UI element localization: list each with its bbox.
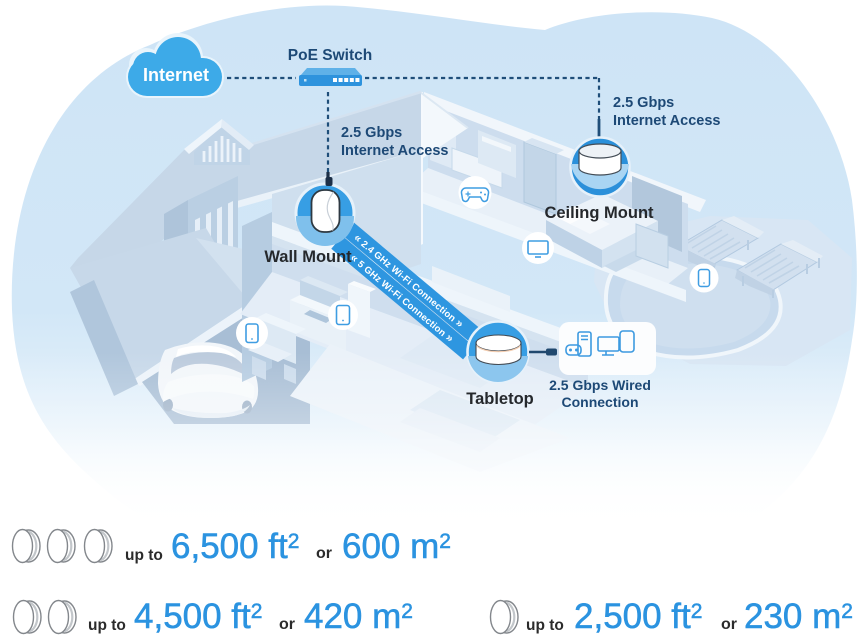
svg-text:or: or bbox=[279, 616, 295, 633]
svg-text:2.5 Gbps Wired: 2.5 Gbps Wired bbox=[549, 377, 651, 393]
svg-text:Wall Mount: Wall Mount bbox=[264, 248, 352, 266]
svg-text:Connection: Connection bbox=[562, 394, 639, 410]
svg-text:230 m2: 230 m2 bbox=[744, 597, 853, 636]
svg-text:6,500 ft2: 6,500 ft2 bbox=[171, 527, 299, 566]
svg-text:up to: up to bbox=[125, 547, 163, 564]
svg-text:600 m2: 600 m2 bbox=[342, 527, 451, 566]
svg-text:2,500 ft2: 2,500 ft2 bbox=[574, 597, 702, 636]
svg-text:or: or bbox=[721, 616, 737, 633]
svg-text:420 m2: 420 m2 bbox=[304, 597, 413, 636]
svg-text:Internet Access: Internet Access bbox=[341, 143, 448, 159]
svg-text:Internet: Internet bbox=[143, 65, 209, 85]
svg-text:PoE Switch: PoE Switch bbox=[288, 47, 372, 64]
svg-text:Ceiling Mount: Ceiling Mount bbox=[544, 204, 654, 222]
svg-text:2.5 Gbps: 2.5 Gbps bbox=[341, 125, 402, 141]
svg-text:Tabletop: Tabletop bbox=[466, 390, 534, 408]
svg-text:4,500 ft2: 4,500 ft2 bbox=[134, 597, 262, 636]
svg-text:or: or bbox=[316, 545, 332, 562]
svg-text:up to: up to bbox=[88, 617, 126, 634]
svg-text:up to: up to bbox=[526, 617, 564, 634]
svg-text:Internet Access: Internet Access bbox=[613, 113, 720, 129]
svg-text:2.5 Gbps: 2.5 Gbps bbox=[613, 95, 674, 111]
